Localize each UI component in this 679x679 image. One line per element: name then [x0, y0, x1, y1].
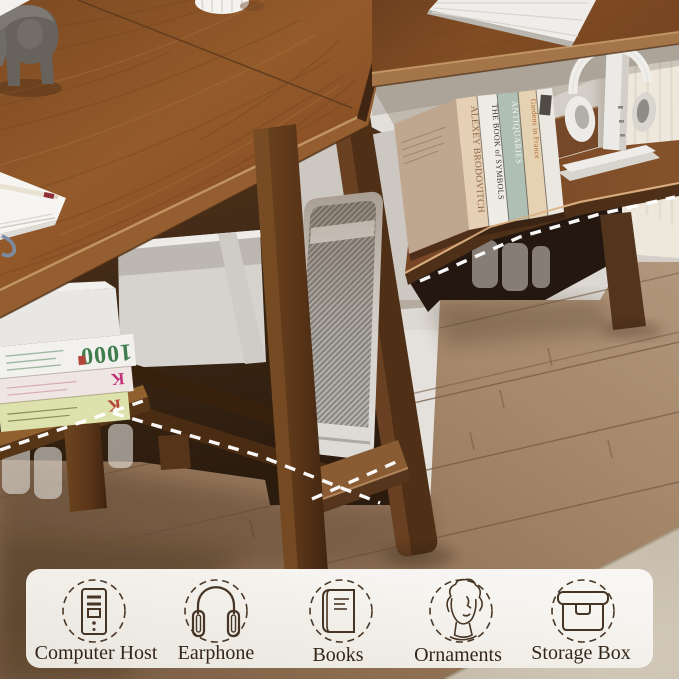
svg-text:Computer Host: Computer Host [35, 642, 158, 664]
svg-text:K: K [110, 369, 126, 389]
svg-text:1000: 1000 [79, 338, 133, 369]
svg-text:Books: Books [312, 644, 363, 666]
svg-text:Storage Box: Storage Box [531, 642, 630, 664]
svg-text:Earphone: Earphone [178, 642, 255, 664]
svg-text:Ornaments: Ornaments [414, 644, 502, 666]
